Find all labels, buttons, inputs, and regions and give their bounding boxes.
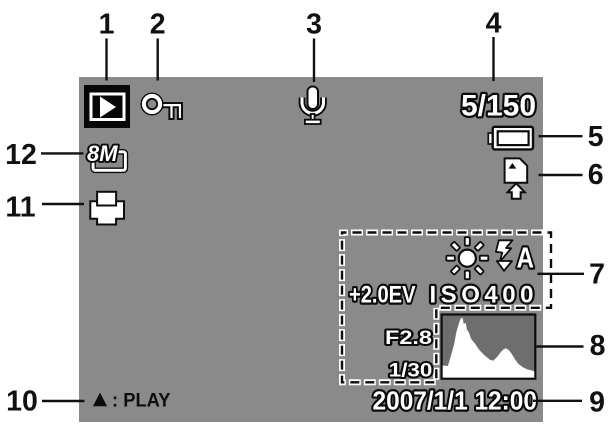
svg-text:A: A bbox=[517, 243, 535, 275]
svg-text:2007/1/1 12:00: 2007/1/1 12:00 bbox=[373, 385, 538, 415]
svg-text:3: 3 bbox=[306, 9, 322, 41]
svg-text:1/30: 1/30 bbox=[389, 360, 433, 382]
svg-text:9: 9 bbox=[589, 387, 605, 419]
svg-text:: PLAY: : PLAY bbox=[112, 390, 171, 411]
svg-text:4: 4 bbox=[486, 8, 502, 40]
svg-text:7: 7 bbox=[589, 259, 605, 291]
svg-text:5: 5 bbox=[588, 121, 604, 153]
svg-text:2: 2 bbox=[150, 9, 166, 41]
svg-text:5/150: 5/150 bbox=[461, 90, 536, 123]
svg-text:1: 1 bbox=[99, 9, 115, 41]
svg-text:8M: 8M bbox=[87, 141, 118, 166]
svg-text:6: 6 bbox=[588, 159, 604, 191]
svg-text:12: 12 bbox=[5, 139, 37, 171]
svg-text:10: 10 bbox=[6, 386, 38, 418]
svg-text:+2.0EV: +2.0EV bbox=[349, 281, 416, 308]
svg-text:11: 11 bbox=[5, 191, 35, 223]
svg-text:F2.8: F2.8 bbox=[385, 327, 432, 349]
svg-text:8: 8 bbox=[590, 330, 606, 362]
